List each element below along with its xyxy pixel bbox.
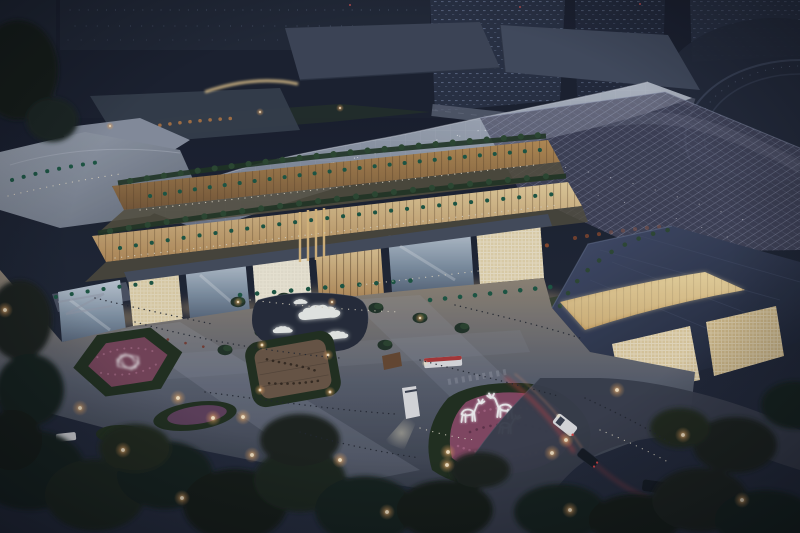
vignette — [0, 0, 800, 533]
mall-aerial-rendering: Aerial dusk rendering of an illuminated … — [0, 0, 800, 533]
rendering-canvas: Aerial dusk rendering of an illuminated … — [0, 0, 800, 533]
